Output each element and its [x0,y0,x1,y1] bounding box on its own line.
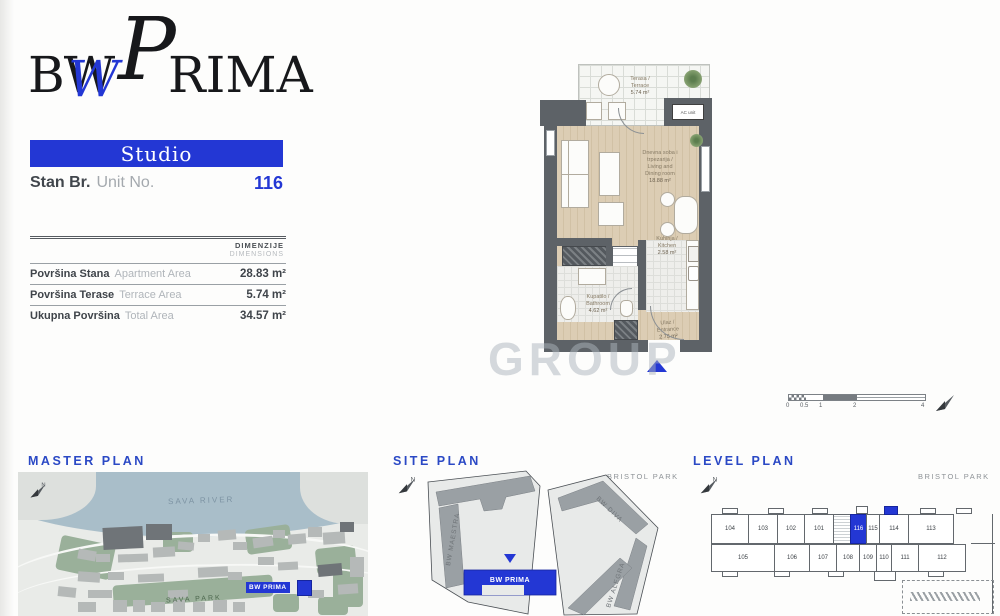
kitchen-label: Kuhinja /Kitchen2.58 m² [648,236,686,257]
wall [544,126,557,352]
kitchen-sink [688,266,699,281]
map-building [228,572,242,580]
balcony-highlighted [884,506,898,515]
balcony [768,508,784,514]
balcony [828,571,844,577]
map-building [350,557,364,577]
stair-core-cell [833,514,851,544]
bathroom-sink [578,268,606,285]
unit-cell: 115 [866,514,880,544]
site-plan-section: SITE PLAN BRISTOL PARK N BW PRIMA BW MAE… [388,452,682,616]
ottoman [598,202,624,226]
dining-table [674,196,698,234]
bw-prima-site-label: BW PRIMA [490,577,530,584]
balcony [956,508,972,514]
living-room-label: Dnevna soba itrpezarija / Living andDini… [634,150,686,184]
window [701,146,710,192]
scale-segment [823,395,857,400]
level-plan-section: LEVEL PLAN BRISTOL PARK N 104 103 102 10… [688,452,1000,616]
map-building [118,553,148,562]
scale-bar: 0 0.5 1 2 4 [788,394,948,414]
north-arrow-icon [933,390,957,414]
wall [680,340,712,352]
indoor-plant [690,134,703,147]
ac-unit-label: AC unit [681,110,696,115]
unit-cell: 113 [908,514,954,544]
scale-tick: 0 [786,403,789,409]
scale-segment [857,395,925,400]
adjacent-wing-hatch [910,592,980,601]
map-building [308,527,322,537]
floor-plan-sheet: BW W P RIMA Studio Stan Br. Unit No. 116… [0,0,1000,616]
map-building [340,522,354,532]
bristol-park-label: BRISTOL PARK [918,472,990,481]
ac-unit-box: AC unit [672,104,704,120]
terrace-plant [684,70,702,88]
watermark-text: GROUP [488,332,682,386]
map-building [153,546,175,557]
terrace-label: Terasa /Terrace5.74 m² [618,76,662,97]
terrace-table [598,74,620,96]
map-building [258,557,274,565]
unit-cell: 105 [711,544,775,572]
master-plan-section: MASTER PLAN SAVA RIVER SAVA PARK BW PRIM… [18,452,368,616]
map-building [233,542,247,550]
dining-chair [660,192,675,207]
site-plan-drawing: BW PRIMA BW MAESTRA BW DIVA BW ALEGRA [406,466,682,616]
map-building [133,600,145,612]
washbasin [560,296,576,320]
unit-cell: 106 [774,544,810,572]
unit-cell: 103 [748,514,778,544]
map-building [138,574,164,583]
master-plan-title: MASTER PLAN [28,454,146,468]
balcony [856,506,868,514]
kitchen-stove [688,246,699,262]
scale-tick: 4 [921,403,924,409]
unit-cell-highlighted: 116 [850,514,867,544]
scale-segment [806,395,823,400]
balcony [812,508,828,514]
map-building [193,602,205,612]
map-building [146,524,172,540]
bw-prima-map-building [297,580,312,596]
map-building [218,529,237,541]
map-building [273,530,285,538]
map-building [198,566,228,578]
sofa [561,140,589,208]
map-building [113,600,127,612]
window [546,130,555,156]
map-building [288,533,307,545]
north-arrow-icon: N [698,474,720,496]
unit-cell: 109 [859,544,877,572]
unit-cell: 107 [809,544,837,572]
map-building [151,602,165,612]
scale-tick: 0.5 [800,403,808,409]
map-building [102,526,143,550]
map-building [88,590,112,598]
svg-text:N: N [41,483,45,489]
unit-cell: 101 [804,514,834,544]
terrace-ottoman [586,102,602,120]
balcony [722,571,738,577]
map-building [338,583,359,594]
unit-cell: 104 [711,514,749,544]
north-arrow-icon: N [28,480,48,500]
unit-cell: 110 [876,544,892,572]
unit-cell: 108 [836,544,860,572]
wall [540,100,586,126]
map-building [78,602,96,612]
map-building [198,534,210,542]
master-plan-map: SAVA RIVER SAVA PARK BW PRIMA N [18,472,368,616]
scale-tick: 2 [853,403,856,409]
coffee-table [599,152,620,196]
wall [557,238,612,246]
map-building [78,571,101,583]
unit-cell: 102 [777,514,805,544]
balcony [722,508,738,514]
wall [638,240,646,310]
balcony [928,571,944,577]
map-building [323,531,346,545]
unit-cell: 114 [879,514,909,544]
map-building [96,554,110,562]
unit-cell: 112 [918,544,966,572]
scale-segment [789,395,806,400]
map-building [58,586,77,598]
balcony [774,571,790,577]
scale-tick: 1 [819,403,822,409]
map-building [178,541,195,550]
map-building [233,602,245,612]
map-building [108,572,124,580]
map-building [278,561,298,570]
balcony [874,571,896,581]
balcony [920,508,936,514]
dining-chair [660,222,675,237]
level-plan-title: LEVEL PLAN [693,454,796,468]
bw-prima-map-label: BW PRIMA [246,582,290,593]
wardrobe [562,246,610,266]
unit-cell: 111 [891,544,919,572]
map-building [318,563,343,577]
svg-text:N: N [713,476,718,483]
